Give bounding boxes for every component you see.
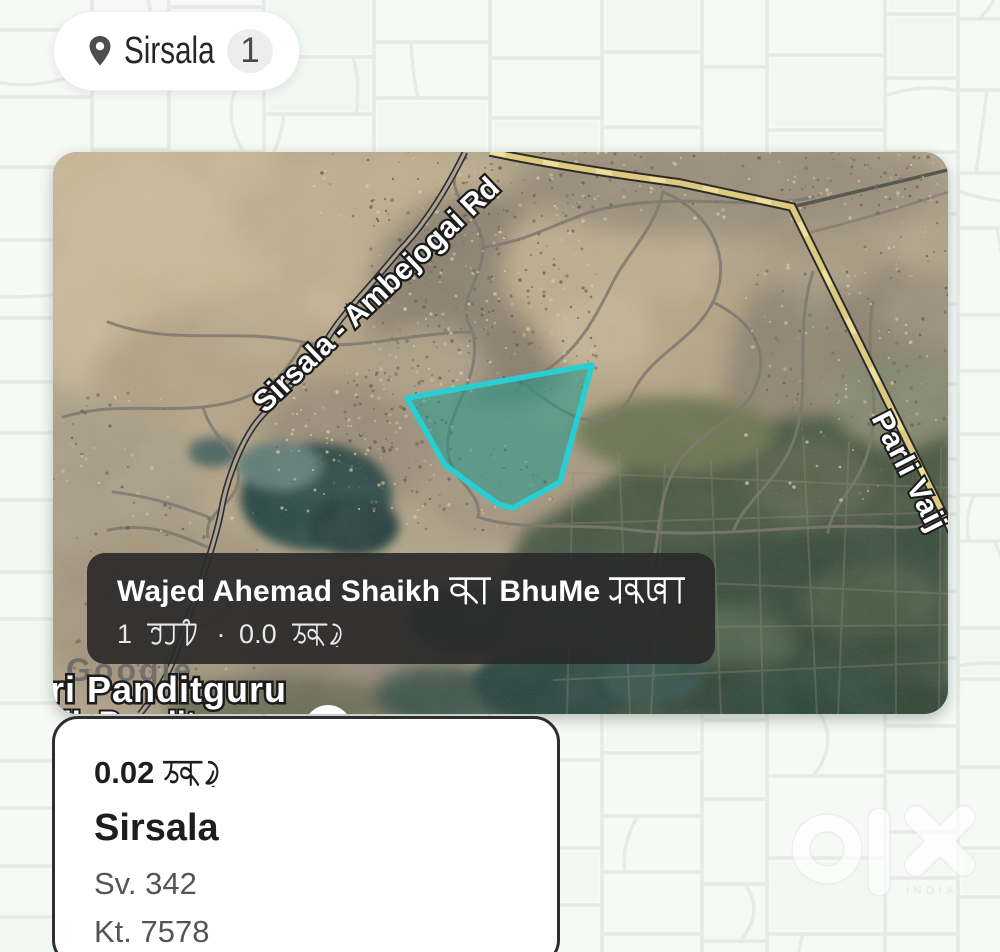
svg-text:hri Panditguru: hri Panditguru: [53, 669, 287, 710]
svg-text:INDIA: INDIA: [906, 885, 958, 897]
svg-text:lk Pandit: lk Pandit: [63, 705, 197, 714]
